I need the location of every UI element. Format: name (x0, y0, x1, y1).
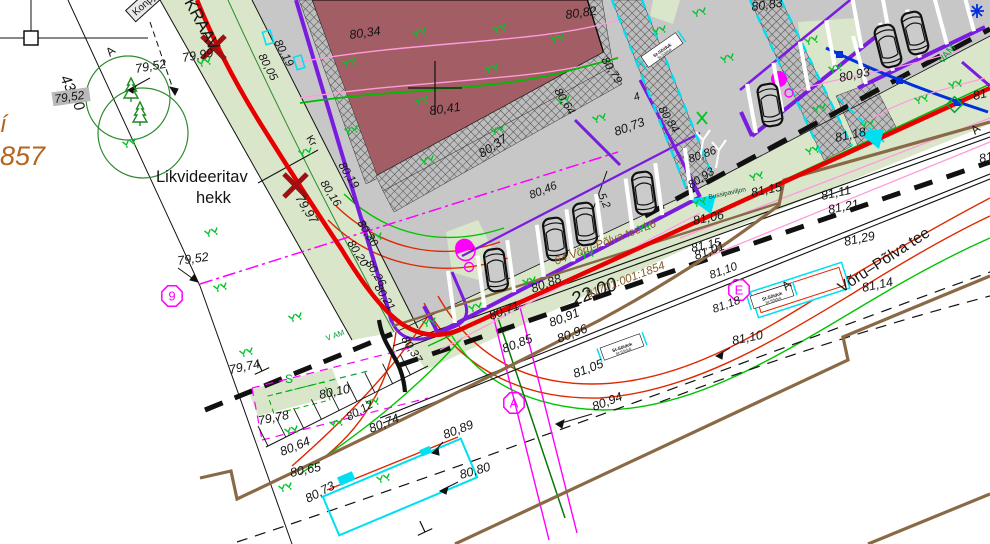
svg-text:hekk: hekk (196, 189, 232, 207)
utility-label: V AM (325, 328, 346, 343)
grass-icon (288, 313, 302, 323)
cut-cadastral: 857 (0, 141, 46, 171)
elevation-label: 81,18 (711, 294, 743, 315)
svg-text:857: 857 (0, 141, 46, 171)
svg-text:81: 81 (978, 149, 990, 166)
svg-text:79,52: 79,52 (176, 250, 209, 268)
grass-icon (204, 228, 218, 238)
circled-point-9: 9 (162, 286, 182, 306)
svg-text:81,29: 81,29 (843, 229, 877, 249)
svg-text:V AM: V AM (325, 328, 346, 343)
cut-label: 81 (972, 86, 989, 103)
hedge-note-line1: Likvideeritav (156, 168, 248, 186)
elevation-label: 79,52 (176, 250, 209, 268)
svg-text:A: A (510, 396, 519, 411)
elevation-label: 81,10 (708, 260, 740, 281)
grass-icon (376, 474, 390, 484)
axis-letter: A (103, 43, 118, 59)
tick-symbol (413, 518, 433, 536)
car-icon (631, 171, 657, 215)
svg-text:81: 81 (972, 86, 989, 103)
elevation-label: 80,73 (303, 479, 337, 506)
hedge-note-line2: hekk (196, 189, 232, 207)
grass-icon (278, 483, 292, 493)
grass-icon (239, 348, 253, 358)
car-icon (572, 202, 598, 246)
svg-text:81,18: 81,18 (711, 294, 743, 315)
elevation-label: 80,89 (441, 418, 475, 442)
svg-text:9: 9 (168, 289, 175, 304)
svg-text:80,64: 80,64 (278, 434, 312, 459)
elevation-label: 81,05 (571, 357, 605, 381)
cad-viewport: St-SõidukSt-SõidukSt-SõidukSt-SõidukSt-S… (0, 0, 990, 544)
elevation-label: 80,74 (367, 411, 401, 436)
cad-site-plan: St-SõidukSt-SõidukSt-SõidukSt-SõidukSt-S… (0, 0, 990, 544)
svg-text:S: S (285, 372, 293, 386)
circled-point-A: A (504, 393, 524, 413)
svg-text:81,05: 81,05 (571, 357, 605, 381)
bus-stop-box (750, 262, 850, 317)
cut-label: 81 (978, 149, 990, 166)
svg-text:80,74: 80,74 (367, 411, 401, 436)
svg-text:81,10: 81,10 (708, 260, 740, 281)
tree-canopy-circle (98, 88, 188, 178)
tree-icon (133, 102, 147, 126)
elevation-label: 80,64 (278, 434, 312, 459)
cut-text: í (0, 111, 9, 138)
utility-label: S (285, 372, 293, 386)
svg-text:80,85: 80,85 (500, 332, 534, 356)
elevation-label: 81,29 (843, 229, 877, 249)
svg-text:Likvideeritav: Likvideeritav (156, 168, 248, 186)
hydrant-icon (970, 4, 984, 18)
svg-text:í: í (0, 111, 9, 138)
tree-symbols (124, 78, 147, 126)
svg-text:A: A (103, 43, 118, 59)
grass-icon (213, 283, 227, 293)
node-square (24, 31, 38, 45)
svg-text:80,73: 80,73 (303, 479, 337, 506)
grass-icon (329, 419, 343, 429)
svg-text:80,65: 80,65 (289, 460, 323, 480)
car-icon (483, 248, 509, 292)
svg-text:81,10: 81,10 (731, 328, 765, 348)
svg-text:80,89: 80,89 (441, 418, 475, 442)
elevation-label: 80,65 (289, 460, 323, 480)
sign-annotation-box: St-SõidukSt-Sõiduk (597, 332, 647, 362)
elevation-label: 80,85 (500, 332, 534, 356)
elevation-label: 81,10 (731, 328, 765, 348)
